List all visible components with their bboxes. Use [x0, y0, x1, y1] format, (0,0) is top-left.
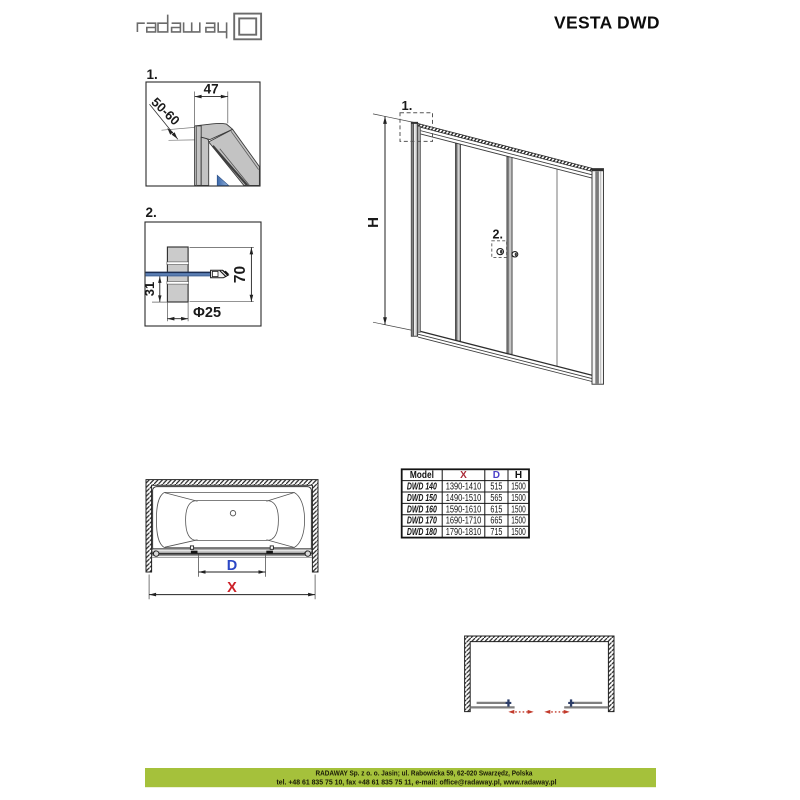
svg-text:665: 665 — [490, 516, 502, 527]
svg-text:DWD 140: DWD 140 — [407, 482, 437, 493]
svg-text:2.: 2. — [493, 228, 503, 242]
svg-text:H: H — [365, 217, 382, 228]
svg-text:1.: 1. — [402, 98, 413, 113]
svg-text:RADAWAY Sp. z o. o. Jasin; ul.: RADAWAY Sp. z o. o. Jasin; ul. Rabowicka… — [316, 768, 534, 777]
svg-text:1790-1810: 1790-1810 — [446, 527, 482, 538]
svg-text:715: 715 — [490, 527, 502, 538]
svg-text:1590-1610: 1590-1610 — [446, 504, 482, 515]
svg-text:1500: 1500 — [511, 493, 526, 504]
svg-text:1500: 1500 — [511, 516, 526, 527]
svg-text:1500: 1500 — [511, 504, 526, 515]
svg-text:2.: 2. — [146, 205, 157, 220]
svg-text:Φ25: Φ25 — [193, 305, 221, 321]
svg-text:31: 31 — [142, 282, 157, 296]
svg-text:615: 615 — [490, 504, 502, 515]
svg-text:1690-1710: 1690-1710 — [446, 516, 482, 527]
svg-text:1490-1510: 1490-1510 — [446, 493, 482, 504]
svg-text:515: 515 — [490, 482, 502, 493]
svg-text:D: D — [493, 470, 500, 481]
svg-text:DWD 160: DWD 160 — [407, 504, 437, 515]
svg-text:X: X — [227, 580, 237, 596]
svg-text:D: D — [227, 558, 237, 574]
svg-text:1500: 1500 — [511, 527, 526, 538]
svg-text:H: H — [515, 470, 522, 481]
svg-text:70: 70 — [232, 266, 249, 283]
svg-text:1390-1410: 1390-1410 — [446, 482, 482, 493]
svg-text:X: X — [460, 470, 467, 481]
svg-text:VESTA DWD: VESTA DWD — [554, 12, 660, 32]
svg-text:DWD 180: DWD 180 — [407, 527, 437, 538]
svg-text:1500: 1500 — [511, 482, 526, 493]
svg-text:DWD 150: DWD 150 — [407, 493, 437, 504]
svg-text:565: 565 — [490, 493, 502, 504]
svg-text:1.: 1. — [147, 67, 158, 82]
svg-text:tel. +48 61 835 75 10, fax +48: tel. +48 61 835 75 10, fax +48 61 835 75… — [277, 778, 557, 787]
svg-text:DWD 170: DWD 170 — [407, 516, 437, 527]
svg-text:47: 47 — [204, 82, 219, 97]
svg-text:Model: Model — [410, 470, 434, 481]
